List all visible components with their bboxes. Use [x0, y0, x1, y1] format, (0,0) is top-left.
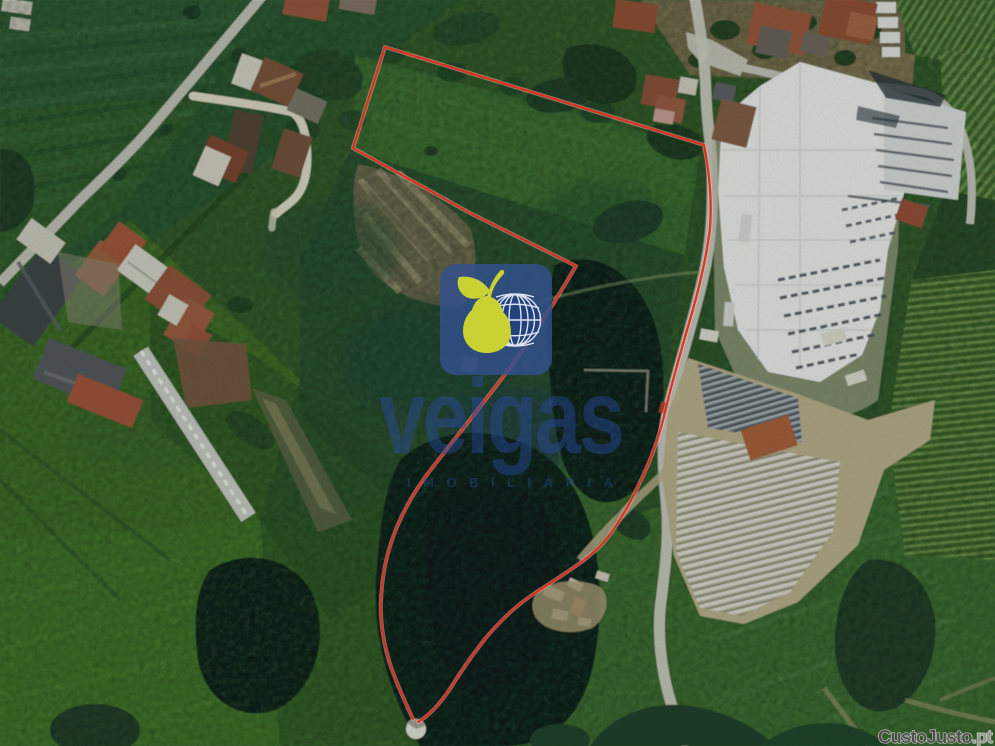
svg-text:IMOBILIÁRIA: IMOBILIÁRIA — [407, 475, 625, 490]
svg-text:veigas: veigas — [379, 358, 622, 476]
svg-text:CustoJusto.pt: CustoJusto.pt — [878, 726, 993, 746]
